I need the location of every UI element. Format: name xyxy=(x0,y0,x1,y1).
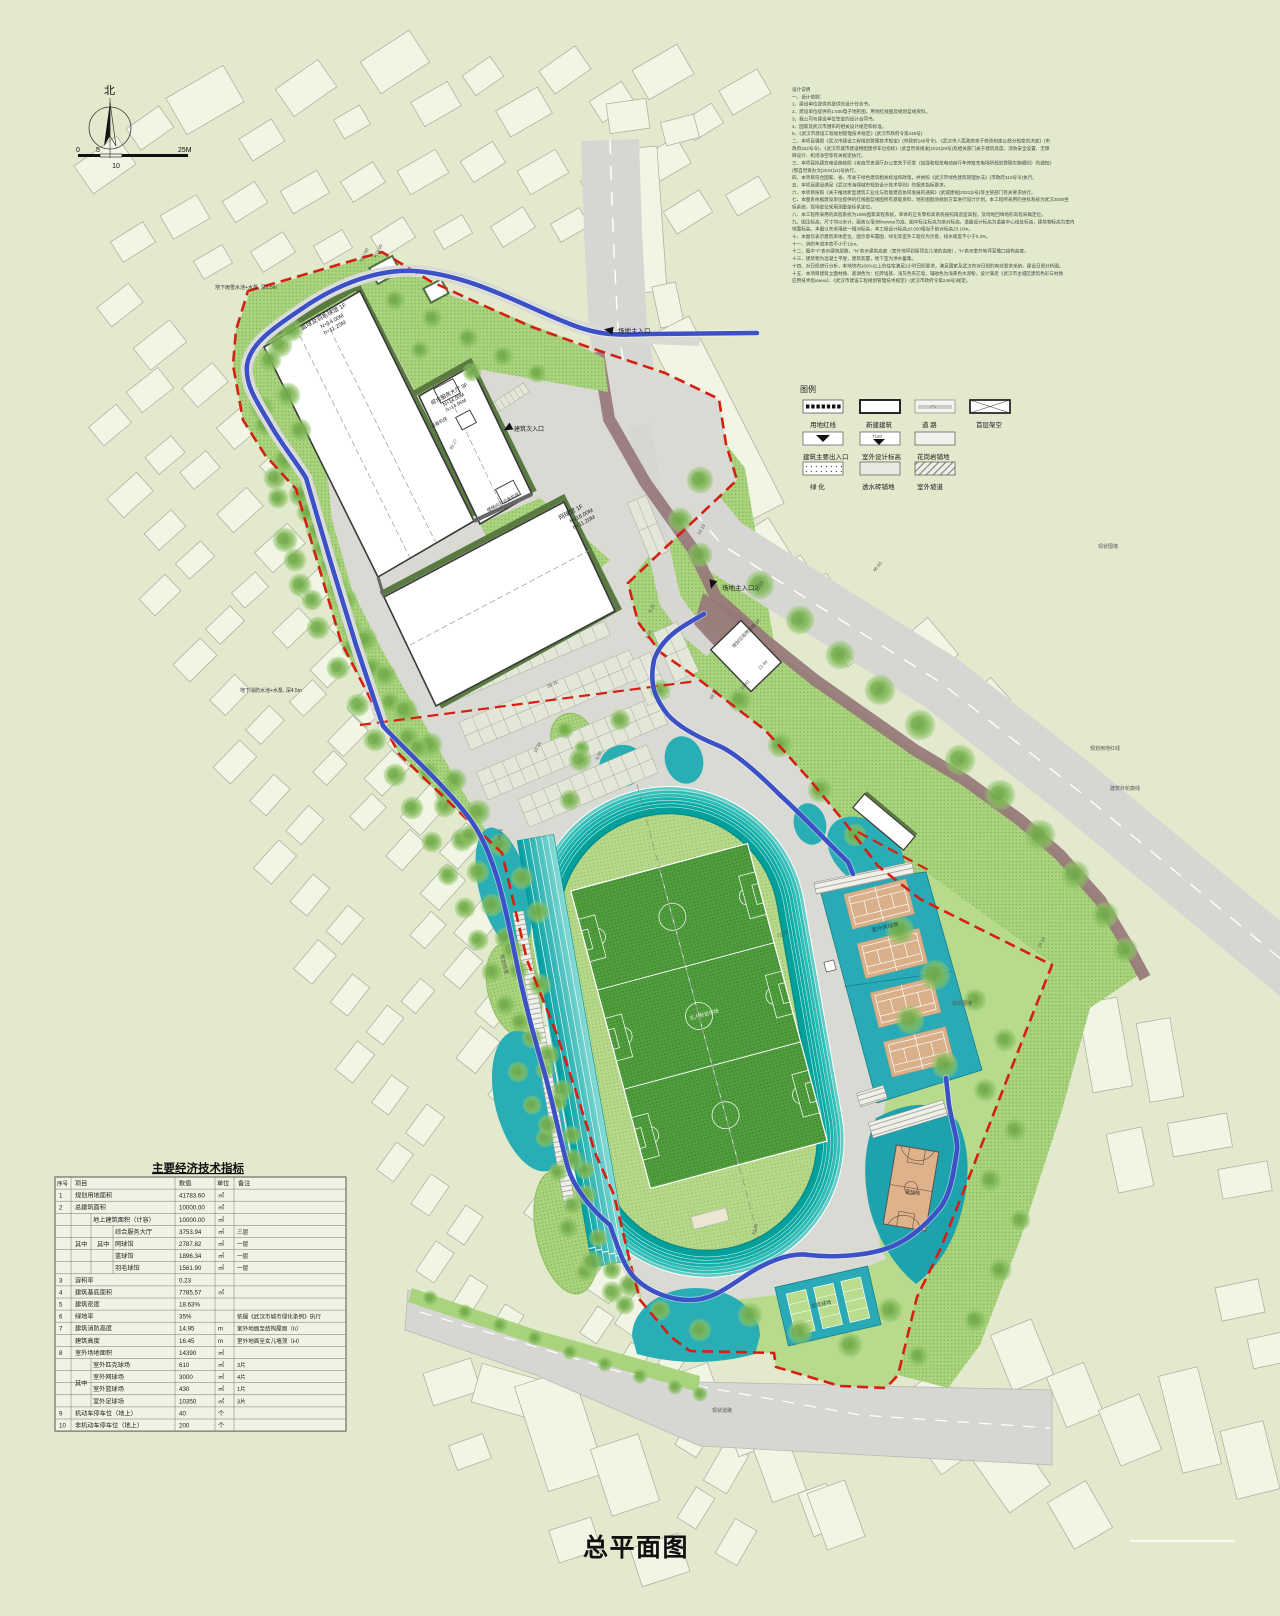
svg-text:14390: 14390 xyxy=(179,1350,197,1357)
svg-text:标系统，现场定位采用测量坐标系定位。: 标系统，现场定位采用测量坐标系定位。 xyxy=(792,204,875,211)
svg-text:㎡: ㎡ xyxy=(218,1349,225,1357)
svg-text:三、本项目拟建充电设施按照《省自然资源厅办公室关于印发（加强: 三、本项目拟建充电设施按照《省自然资源厅办公室关于印发（加强和规范电动自行车停放… xyxy=(792,160,1054,167)
svg-text:7150: 7150 xyxy=(872,434,883,439)
svg-text:篮球馆: 篮球馆 xyxy=(115,1252,134,1260)
svg-text:1561.90: 1561.90 xyxy=(179,1265,202,1272)
svg-text:图例: 图例 xyxy=(800,384,816,394)
svg-text:一、设计依据：: 一、设计依据： xyxy=(792,93,824,100)
svg-text:4: 4 xyxy=(59,1289,63,1296)
svg-text:室外网球场: 室外网球场 xyxy=(93,1373,124,1381)
svg-text:1、建设单位提供的提供的设计任务书。: 1、建设单位提供的提供的设计任务书。 xyxy=(792,101,873,108)
svg-text:现状道路: 现状道路 xyxy=(712,1407,732,1414)
svg-text:绿地率: 绿地率 xyxy=(75,1313,94,1321)
svg-text:㎡: ㎡ xyxy=(218,1385,225,1393)
svg-text:1: 1 xyxy=(59,1193,63,1200)
svg-text:9: 9 xyxy=(59,1410,63,1417)
svg-text:㎡: ㎡ xyxy=(218,1288,225,1296)
svg-text:十五、本项目建筑立面材质、基调色为：红砖墙基、浅灰色夹芯墙，: 十五、本项目建筑立面材质、基调色为：红砖墙基、浅灰色夹芯墙，辅助色为浅黄色水泥粉… xyxy=(792,270,1063,277)
svg-text:花岗岩铺地: 花岗岩铺地 xyxy=(917,452,950,461)
svg-text:一层: 一层 xyxy=(237,1265,249,1272)
svg-text:主要经济技术指标: 主要经济技术指标 xyxy=(152,1161,244,1175)
svg-text:18.63%: 18.63% xyxy=(179,1302,200,1309)
svg-text:0.23: 0.23 xyxy=(179,1277,192,1284)
svg-text:三层: 三层 xyxy=(237,1229,249,1236)
svg-text:16.45: 16.45 xyxy=(179,1338,195,1345)
svg-text:4、国家及武汉市颁布的相关设计规范和标准。: 4、国家及武汉市颁布的相关设计规范和标准。 xyxy=(792,123,886,130)
svg-text:㎡: ㎡ xyxy=(218,1264,225,1272)
svg-text:7: 7 xyxy=(59,1326,63,1333)
svg-text:2: 2 xyxy=(59,1205,63,1212)
svg-text:碍设计、机场净空等有关规定执行。: 碍设计、机场净空等有关规定执行。 xyxy=(792,152,866,159)
svg-text:41783.60: 41783.60 xyxy=(179,1193,205,1200)
svg-text:现状围墙: 现状围墙 xyxy=(1098,543,1118,550)
svg-text:1片: 1片 xyxy=(237,1385,246,1393)
svg-text:地下消防水池+水泵, 深4.5m: 地下消防水池+水泵, 深4.5m xyxy=(240,687,302,694)
svg-text:室外地面至女儿墙顶（H）: 室外地面至女儿墙顶（H） xyxy=(237,1337,303,1345)
svg-text:个: 个 xyxy=(218,1423,224,1430)
svg-text:10350: 10350 xyxy=(179,1398,197,1405)
svg-text:建筑高度: 建筑高度 xyxy=(75,1337,100,1345)
svg-text:建筑次入口: 建筑次入口 xyxy=(514,425,544,433)
svg-text:14.95: 14.95 xyxy=(179,1326,195,1333)
svg-text:㎡: ㎡ xyxy=(218,1361,225,1369)
svg-text:3753.94: 3753.94 xyxy=(179,1229,202,1236)
svg-text:个: 个 xyxy=(218,1410,224,1417)
svg-text:40: 40 xyxy=(179,1410,186,1417)
svg-text:九、图注标高、尺寸均以米计，距离以毫米likewise为准。: 九、图注标高、尺寸均以米计，距离以毫米likewise为准。图中标注标高为绝对标… xyxy=(792,218,1075,225)
svg-text:200: 200 xyxy=(179,1423,190,1430)
svg-text:总平面图: 总平面图 xyxy=(583,1534,689,1562)
svg-text:一层: 一层 xyxy=(237,1241,249,1248)
svg-text:序号: 序号 xyxy=(57,1180,69,1188)
svg-text:4片: 4片 xyxy=(237,1373,246,1381)
svg-text:m: m xyxy=(218,1338,223,1345)
svg-text:2787.82: 2787.82 xyxy=(179,1241,202,1248)
svg-text:设计说明: 设计说明 xyxy=(792,86,811,93)
svg-text:其中: 其中 xyxy=(75,1241,87,1249)
svg-text:室外设计标高: 室外设计标高 xyxy=(862,452,902,461)
svg-text:㎡: ㎡ xyxy=(218,1252,225,1260)
svg-text:7785.57: 7785.57 xyxy=(179,1289,202,1296)
svg-text:项目: 项目 xyxy=(75,1181,87,1188)
svg-text:道 路: 道 路 xyxy=(922,420,937,429)
svg-text:㎡: ㎡ xyxy=(218,1373,225,1381)
svg-text:网球馆: 网球馆 xyxy=(115,1240,134,1248)
svg-text:二、本项目遵照《武汉市建设工程规划管理技术规定》(市政府24: 二、本项目遵照《武汉市建设工程规划管理技术规定》(市政府248号令)、《武汉市人… xyxy=(792,137,1050,144)
svg-text:场地主入口2: 场地主入口2 xyxy=(722,583,759,592)
svg-text:室外篮球场: 室外篮球场 xyxy=(93,1385,124,1393)
svg-text:室外足球场: 室外足球场 xyxy=(93,1397,124,1405)
svg-text:透水砖铺地: 透水砖铺地 xyxy=(862,482,895,491)
svg-text:8: 8 xyxy=(59,1350,63,1357)
svg-text:3片: 3片 xyxy=(237,1397,246,1405)
svg-text:建筑基底面积: 建筑基底面积 xyxy=(75,1288,112,1296)
svg-text:机动车停车位（地上）: 机动车停车位（地上） xyxy=(75,1409,137,1417)
svg-text:5、《武汉市建设工程规划管理技术规定》(武汉市政府令第248: 5、《武汉市建设工程规划管理技术规定》(武汉市政府令第248号) xyxy=(792,130,923,137)
svg-text:3: 3 xyxy=(59,1277,63,1284)
svg-text:一层: 一层 xyxy=(237,1253,249,1260)
svg-text:新建建筑: 新建建筑 xyxy=(866,420,893,429)
svg-text:十一、消防车道净宽不小于12m。: 十一、消防车道净宽不小于12m。 xyxy=(792,240,861,247)
svg-text:1896.34: 1896.34 xyxy=(179,1253,202,1260)
svg-text:依据《武汉市城市绿化条例》执行: 依据《武汉市城市绿化条例》执行 xyxy=(237,1313,321,1321)
svg-text:政府322号令)、《武汉市城市建设物配建停车位指标》(武自然: 政府322号令)、《武汉市城市建设物配建停车位指标》(武自然资规发[2024]2… xyxy=(792,145,1050,152)
svg-text:25M: 25M xyxy=(178,147,192,154)
svg-text:10: 10 xyxy=(59,1423,66,1430)
svg-text:综合服务大厅: 综合服务大厅 xyxy=(115,1228,152,1236)
svg-text:0: 0 xyxy=(76,147,80,154)
svg-text:室外场地面积: 室外场地面积 xyxy=(75,1349,112,1357)
svg-text:十四、对日照进行分析，本地块内100%以上的住宅满足2小时日: 十四、对日照进行分析，本地块内100%以上的住宅满足2小时日照要求，满足国家及武… xyxy=(792,262,1064,269)
svg-text:羽毛球馆: 羽毛球馆 xyxy=(115,1264,140,1272)
svg-text:㎡: ㎡ xyxy=(218,1228,225,1236)
svg-text:四、本项目符合国家、省、市关于绿色建筑相关标准和政策，并依照: 四、本项目符合国家、省、市关于绿色建筑相关标准和政策，并依照《武汉市绿色建筑管理… xyxy=(792,174,1037,181)
svg-text:地下雨雪水池+水泵, 深1.5m: 地下雨雪水池+水泵, 深1.5m xyxy=(215,284,277,291)
svg-text:地面标高。本图以东采用统一相对标高，本工程设计标高±0.00: 地面标高。本图以东采用统一相对标高，本工程设计标高±0.000相当于绝对标高23… xyxy=(792,226,973,233)
svg-text:单位: 单位 xyxy=(217,1180,229,1188)
svg-text:建筑外轮廓线: 建筑外轮廓线 xyxy=(1110,785,1140,792)
svg-text:地上建筑面积（计容）: 地上建筑面积（计容） xyxy=(93,1216,155,1224)
svg-text:非机动车停车位（地上）: 非机动车停车位（地上） xyxy=(75,1422,143,1430)
svg-text:室外地面至结构屋面（h）: 室外地面至结构屋面（h） xyxy=(237,1325,302,1333)
svg-text:总建筑面积: 总建筑面积 xyxy=(75,1204,106,1212)
svg-text:建筑主要出入口: 建筑主要出入口 xyxy=(803,452,849,461)
svg-text:610: 610 xyxy=(179,1362,190,1369)
svg-text:(鄂自然资办文[2024]11)号执行。: (鄂自然资办文[2024]11)号执行。 xyxy=(792,167,859,174)
svg-text:㎡: ㎡ xyxy=(218,1216,225,1224)
svg-text:规划用地红线: 规划用地红线 xyxy=(1090,745,1120,752)
svg-text:室外匹克球场: 室外匹克球场 xyxy=(93,1361,130,1369)
svg-text:十三、建筑物为混凝土平屋，建筑装置，地下室为洪水蓄集。: 十三、建筑物为混凝土平屋，建筑装置，地下室为洪水蓄集。 xyxy=(792,255,916,262)
svg-text:m: m xyxy=(218,1326,223,1333)
svg-text:其中: 其中 xyxy=(75,1380,87,1388)
svg-text:其中: 其中 xyxy=(97,1241,109,1249)
svg-text:10000.00: 10000.00 xyxy=(179,1217,205,1224)
svg-text:十、本图仅表示建筑单体定位，图示意布置图，绿化等室外工程仅为: 十、本图仅表示建筑单体定位，图示意布置图，绿化等室外工程仅为示意，排水坡度不小于… xyxy=(792,233,991,240)
svg-text:㎡: ㎡ xyxy=(218,1397,225,1405)
svg-text:规划用地面积: 规划用地面积 xyxy=(75,1192,112,1200)
svg-text:建筑消防高度: 建筑消防高度 xyxy=(75,1325,112,1333)
svg-text:备注: 备注 xyxy=(238,1180,250,1188)
svg-text:容积率: 容积率 xyxy=(75,1276,94,1284)
svg-text:2、建设单位提供的1:500电子地形图、用地红线图及规划蓝线: 2、建设单位提供的1:500电子地形图、用地红线图及规划蓝线资料。 xyxy=(792,108,930,115)
svg-text:㎡: ㎡ xyxy=(218,1192,225,1200)
svg-text:七、本图系依据建设单位提供的红线图蓝线图所有基础资料、地形图: 七、本图系依据建设单位提供的红线图蓝线图所有基础资料、地形图勘测规划方案进行设计… xyxy=(792,196,1069,203)
svg-text:场地主入口: 场地主入口 xyxy=(618,326,651,335)
svg-text:十二、图中"F"表示建筑层数，"N"表示建筑高度（室外地坪到: 十二、图中"F"表示建筑层数，"N"表示建筑高度（室外地坪到屋顶女儿墙的高度），… xyxy=(792,248,1029,255)
svg-text:六、本项目按照《关于推动新型建筑工业化与智能建造协同发展的通: 六、本项目按照《关于推动新型建筑工业化与智能建造协同发展的通知》(武城建规[20… xyxy=(792,189,1036,196)
svg-text:35%: 35% xyxy=(179,1314,192,1321)
svg-text:㎡: ㎡ xyxy=(218,1204,225,1212)
svg-text:6: 6 xyxy=(59,1314,63,1321)
svg-text:应用技术指южна》、《武汉市建设工程规划管理技术规定》(武: 应用技术指южна》、《武汉市建设工程规划管理技术规定》(武汉市政府令第248号… xyxy=(792,277,970,284)
svg-text:建筑密度: 建筑密度 xyxy=(75,1301,100,1309)
svg-text:室外坡道: 室外坡道 xyxy=(917,482,944,491)
svg-text:㎡: ㎡ xyxy=(218,1240,225,1248)
svg-text:北: 北 xyxy=(104,84,115,97)
svg-text:八、本工程所采用的高程系统为1985国家高程系统，单体的正负: 八、本工程所采用的高程系统为1985国家高程系统，单体的正负零标高系统按照再造型… xyxy=(792,211,1046,218)
svg-text:430: 430 xyxy=(179,1386,190,1393)
svg-text:5: 5 xyxy=(96,147,100,154)
svg-text:10: 10 xyxy=(112,163,120,170)
svg-text:数值: 数值 xyxy=(179,1180,191,1188)
svg-text:首层架空: 首层架空 xyxy=(976,420,1003,429)
svg-text:五、本项目建设满足《武汉市海绵城市规划设计技术导则》的相关指: 五、本项目建设满足《武汉市海绵城市规划设计技术导则》的相关指标要求。 xyxy=(792,182,948,189)
svg-text:3000: 3000 xyxy=(179,1374,193,1381)
svg-text:绿 化: 绿 化 xyxy=(810,482,825,491)
svg-text:5: 5 xyxy=(59,1302,63,1309)
svg-text:现状围墙: 现状围墙 xyxy=(952,1000,972,1007)
svg-text:3、我公司与建设单位签定的设计合同书。: 3、我公司与建设单位签定的设计合同书。 xyxy=(792,115,877,122)
svg-text:10000.00: 10000.00 xyxy=(179,1205,205,1212)
svg-text:3片: 3片 xyxy=(237,1361,246,1369)
svg-text:用地红线: 用地红线 xyxy=(810,420,837,429)
